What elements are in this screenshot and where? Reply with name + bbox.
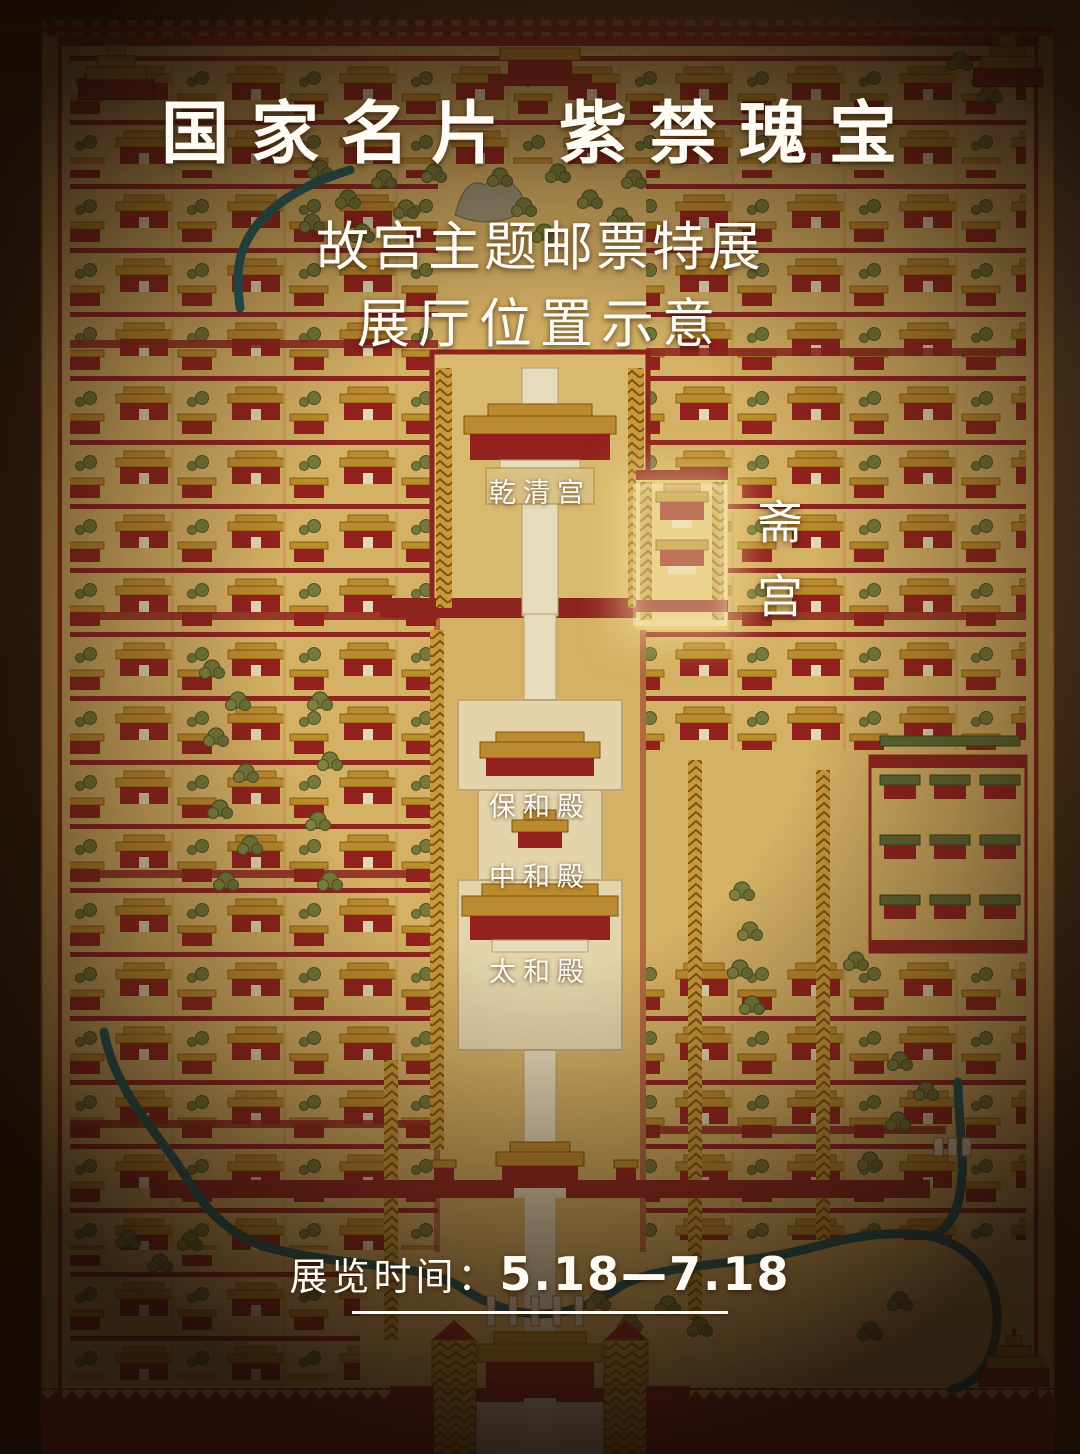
exhibition-dates-label: 展览时间： bbox=[289, 1246, 499, 1301]
poster-title: 国家名片紫禁瑰宝 bbox=[0, 78, 1080, 177]
poster-title-part2: 紫禁瑰宝 bbox=[559, 94, 919, 174]
map-label-taihedian: 太和殿 bbox=[480, 950, 600, 989]
map-label-zhonghedian: 中和殿 bbox=[480, 855, 600, 894]
map-label-zhaigong: 斋宫 bbox=[740, 498, 800, 646]
poster-subtitle-2: 展厅位置示意 bbox=[0, 282, 1080, 358]
map-label-qianqinggong: 乾清宫 bbox=[480, 471, 600, 510]
footer-underline bbox=[352, 1311, 728, 1314]
exhibition-poster: 国家名片紫禁瑰宝 故宫主题邮票特展 展厅位置示意 乾清宫 斋宫 保和殿 中和殿 … bbox=[0, 0, 1080, 1454]
exhibition-dates: 展览时间： 5.18—7.18 bbox=[0, 1246, 1080, 1301]
exhibition-dates-value: 5.18—7.18 bbox=[500, 1247, 791, 1301]
poster-subtitle: 故宫主题邮票特展 bbox=[0, 205, 1080, 281]
meridian-gate bbox=[390, 1320, 690, 1454]
poster-title-part1: 国家名片 bbox=[161, 94, 521, 174]
zhaigong-highlight bbox=[633, 484, 727, 626]
map-label-baohedian: 保和殿 bbox=[480, 785, 600, 824]
green-roof-district bbox=[870, 736, 1026, 952]
